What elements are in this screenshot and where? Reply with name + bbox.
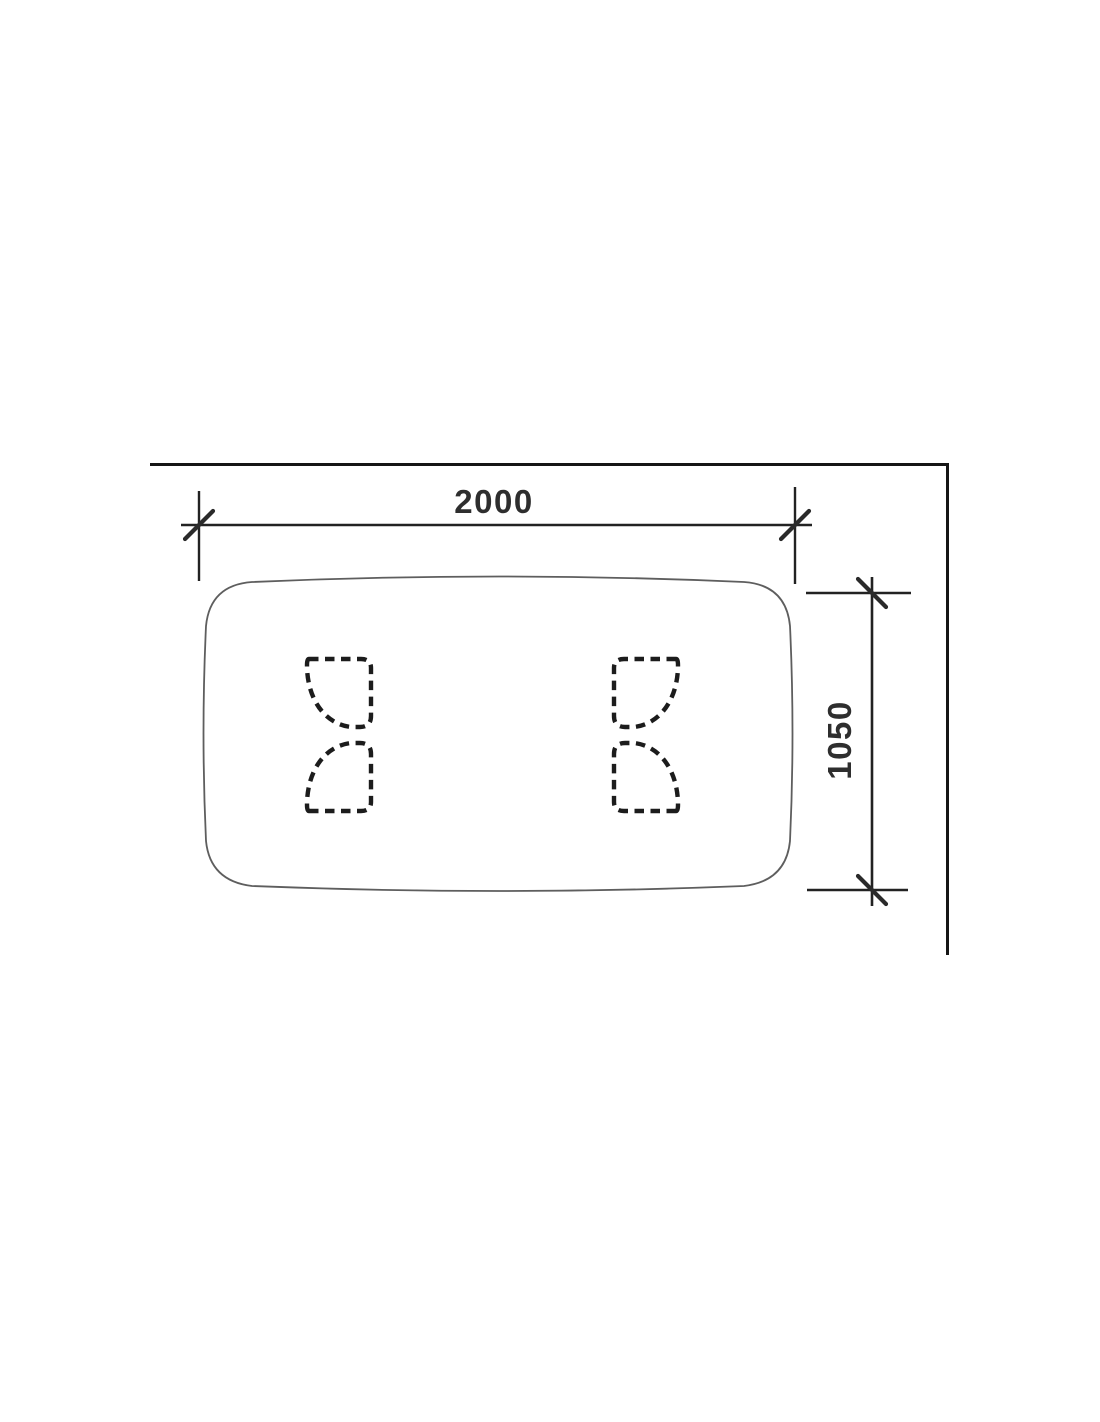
right-leg-top-leaf [614,659,678,727]
height-dimension-group: 1050 [806,577,911,906]
left-leg-top-leaf [307,659,371,727]
right-leg-bottom-leaf [614,743,678,811]
tabletop-outline [204,577,793,892]
technical-drawing: 2000 1050 [0,0,1100,1422]
height-dimension-label: 1050 [821,700,858,779]
left-leg-bottom-leaf [307,743,371,811]
table-leg-right [614,659,678,811]
width-dimension-label: 2000 [454,483,533,520]
width-dimension-group: 2000 [181,483,812,584]
table-leg-left [307,659,371,811]
drawing-canvas: 2000 1050 [0,0,1100,1422]
